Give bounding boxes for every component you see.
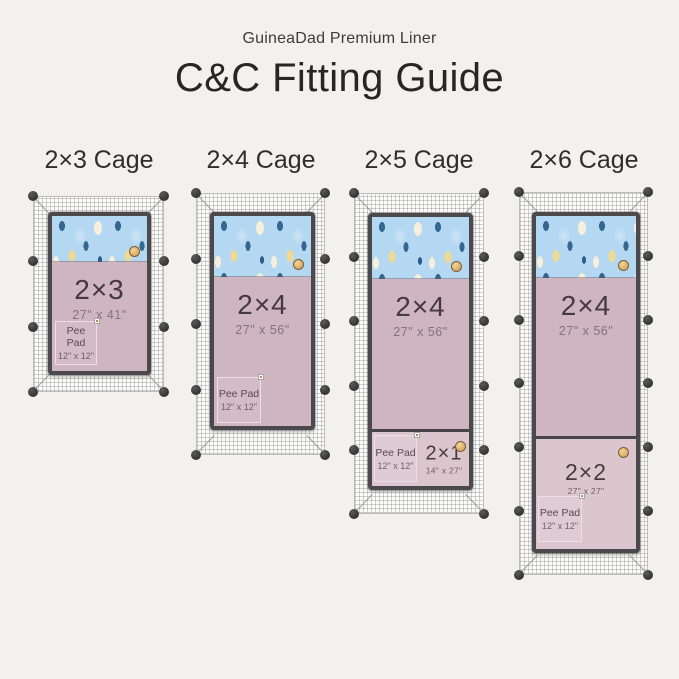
guineadad-badge-icon [618, 260, 629, 271]
header: GuineaDad Premium Liner C&C Fitting Guid… [0, 0, 679, 101]
mesh-corner-line [34, 372, 51, 390]
connector-ball [320, 385, 330, 395]
connector-ball [514, 378, 524, 388]
connector-ball [191, 319, 201, 329]
snap-button-icon [94, 318, 100, 324]
guineadad-badge-icon [451, 261, 462, 272]
liner-dimensions: 27" x 56" [536, 324, 636, 338]
connector-ball [643, 315, 653, 325]
fleece-pocket-top [52, 216, 147, 262]
extra-size-label: 2×2 [536, 459, 636, 486]
liner-size-label: 2×4 [372, 279, 469, 323]
connector-ball [159, 191, 169, 201]
connector-ball [643, 442, 653, 452]
pee-pad-dimensions: 12" x 12" [378, 461, 414, 471]
connector-ball [479, 252, 489, 262]
connector-ball [191, 254, 201, 264]
pee-pad-label: Pee Pad [375, 447, 415, 459]
liner-stack-2x6: 2×4 27" x 56" 2×2 27" x 27" Pee Pad 12" … [532, 212, 640, 553]
connector-ball [479, 381, 489, 391]
liner-extra-2x2: 2×2 27" x 27" Pee Pad 12" x 12" [536, 436, 636, 549]
connector-ball [320, 319, 330, 329]
connector-ball [514, 251, 524, 261]
pee-pad: Pee Pad 12" x 12" [374, 435, 417, 482]
pee-pad-dimensions: 12" x 12" [542, 521, 578, 531]
cage-2x4: 2×4 27" x 56" Pee Pad 12" x 12" [196, 193, 325, 455]
connector-ball [349, 316, 359, 326]
connector-ball [643, 378, 653, 388]
mesh-corner-line [197, 435, 214, 453]
cage-2x5: 2×4 27" x 56" Pee Pad 12" x 12" 2×1 14" … [354, 193, 484, 514]
snap-button-icon [414, 432, 420, 438]
mesh-corner-line [197, 195, 214, 213]
connector-ball [159, 256, 169, 266]
connector-ball [159, 322, 169, 332]
connector-ball [643, 506, 653, 516]
connector-ball [514, 506, 524, 516]
guineadad-badge-icon [293, 259, 304, 270]
pee-pad: Pee Pad 12" x 12" [217, 377, 261, 423]
pee-pad: Pee Pad 12" x 12" [538, 496, 582, 542]
heading-2x4-cage: 2×4 Cage [186, 146, 336, 175]
guineadad-badge-icon [618, 447, 629, 458]
extra-dimensions: 14" x 27" [419, 466, 469, 476]
connector-ball [28, 387, 38, 397]
pee-pad: Pee Pad 12" x 12" [55, 321, 97, 365]
pee-pad-label: Pee Pad [56, 325, 96, 349]
liner-body-2x4: 2×4 27" x 56" [536, 278, 636, 436]
connector-ball [320, 254, 330, 264]
liner-body-2x4: 2×4 27" x 56" [372, 279, 469, 429]
connector-ball [514, 570, 524, 580]
heading-2x5-cage: 2×5 Cage [344, 146, 494, 175]
liner-size-label: 2×4 [214, 277, 311, 321]
liner-extra-2x1: Pee Pad 12" x 12" 2×1 14" x 27" [372, 429, 469, 486]
connector-ball [191, 450, 201, 460]
liner-dimensions: 27" x 56" [372, 325, 469, 339]
liner-stack-2x5: 2×4 27" x 56" Pee Pad 12" x 12" 2×1 14" … [368, 213, 473, 490]
connector-ball [320, 188, 330, 198]
mesh-corner-line [355, 195, 372, 213]
mesh-corner-line [520, 194, 537, 212]
pee-pad-label: Pee Pad [540, 507, 580, 519]
connector-ball [643, 251, 653, 261]
infographic-canvas: GuineaDad Premium Liner C&C Fitting Guid… [0, 0, 679, 679]
connector-ball [349, 509, 359, 519]
connector-ball [479, 509, 489, 519]
liner-2x3: 2×3 27" x 41" Pee Pad 12" x 12" [48, 212, 151, 375]
extra-liner-label-block: 2×2 27" x 27" [536, 459, 636, 496]
connector-ball [514, 187, 524, 197]
heading-2x3-cage: 2×3 Cage [24, 146, 174, 175]
pee-pad-dimensions: 12" x 12" [58, 351, 94, 361]
fleece-pocket-top [214, 216, 311, 277]
liner-body: 2×4 27" x 56" Pee Pad 12" x 12" [214, 277, 311, 426]
page-title: C&C Fitting Guide [0, 56, 679, 101]
guineadad-badge-icon [129, 246, 140, 257]
connector-ball [320, 450, 330, 460]
connector-ball [191, 385, 201, 395]
cage-2x3: 2×3 27" x 41" Pee Pad 12" x 12" [33, 196, 164, 392]
connector-ball [28, 256, 38, 266]
mesh-corner-line [355, 494, 372, 512]
connector-ball [349, 381, 359, 391]
snap-button-icon [579, 493, 585, 499]
mesh-corner-line [629, 194, 646, 212]
connector-ball [28, 322, 38, 332]
connector-ball [479, 316, 489, 326]
connector-ball [479, 445, 489, 455]
connector-ball [191, 188, 201, 198]
mesh-corner-line [520, 555, 537, 573]
liner-size-label: 2×3 [52, 262, 147, 306]
liner-body: 2×3 27" x 41" Pee Pad 12" x 12" [52, 262, 147, 371]
liner-dimensions: 27" x 56" [214, 323, 311, 337]
mesh-corner-line [306, 195, 323, 213]
connector-ball [514, 442, 524, 452]
heading-2x6-cage: 2×6 Cage [509, 146, 659, 175]
snap-button-icon [258, 374, 264, 380]
extra-dimensions: 27" x 27" [536, 486, 636, 496]
liner-2x4: 2×4 27" x 56" Pee Pad 12" x 12" [210, 212, 315, 430]
connector-ball [514, 315, 524, 325]
connector-ball [349, 252, 359, 262]
connector-ball [643, 187, 653, 197]
connector-ball [349, 445, 359, 455]
pee-pad-label: Pee Pad [219, 388, 259, 400]
fleece-pocket-top [536, 216, 636, 278]
fleece-pocket-top [372, 217, 469, 279]
liner-size-label: 2×4 [536, 278, 636, 322]
guineadad-badge-icon [455, 441, 466, 452]
pee-pad-dimensions: 12" x 12" [221, 402, 257, 412]
connector-ball [159, 387, 169, 397]
connector-ball [479, 188, 489, 198]
cage-2x6: 2×4 27" x 56" 2×2 27" x 27" Pee Pad 12" … [519, 192, 648, 575]
brand-line: GuineaDad Premium Liner [0, 30, 679, 48]
connector-ball [349, 188, 359, 198]
connector-ball [643, 570, 653, 580]
mesh-corner-line [465, 195, 482, 213]
connector-ball [28, 191, 38, 201]
